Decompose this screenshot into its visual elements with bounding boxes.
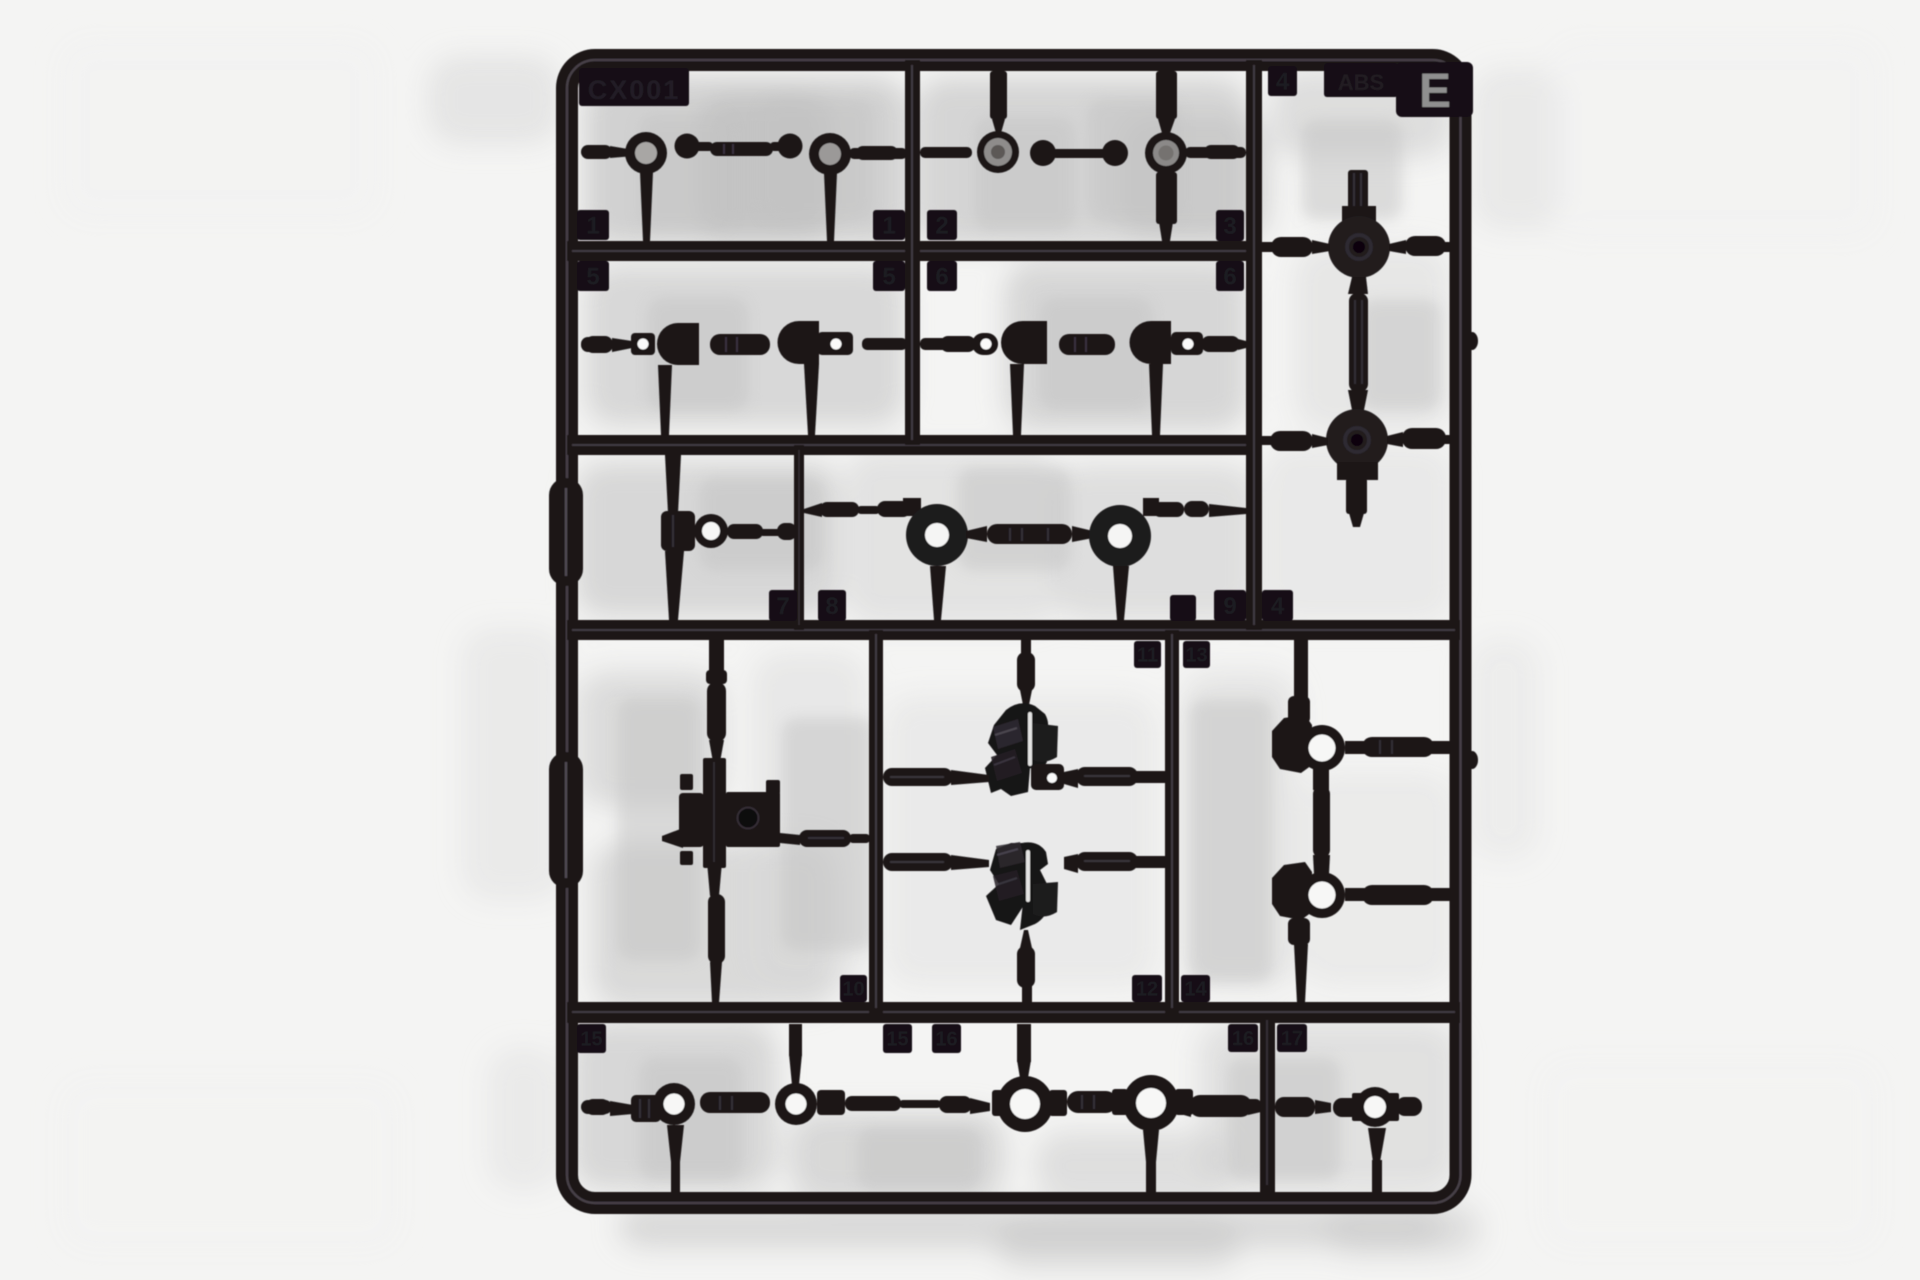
svg-text:12: 12 — [1136, 979, 1158, 1001]
svg-text:16: 16 — [1232, 1028, 1254, 1050]
svg-text:4: 4 — [1271, 593, 1285, 620]
svg-text:7: 7 — [776, 593, 789, 620]
svg-text:15: 15 — [580, 1029, 602, 1051]
svg-text:10: 10 — [842, 979, 864, 1001]
svg-text:16: 16 — [935, 1029, 957, 1051]
svg-text:14: 14 — [1184, 979, 1207, 1001]
svg-text:15: 15 — [886, 1029, 908, 1051]
svg-text:2: 2 — [935, 213, 948, 240]
svg-text:13: 13 — [1185, 645, 1207, 667]
svg-text:ABS: ABS — [1338, 70, 1384, 95]
svg-text:E: E — [1419, 65, 1451, 118]
svg-text:8: 8 — [825, 593, 838, 620]
svg-text:9: 9 — [1223, 593, 1236, 620]
svg-text:11: 11 — [1137, 645, 1158, 667]
svg-text:5: 5 — [586, 264, 599, 291]
svg-text:CX001: CX001 — [588, 75, 681, 105]
svg-text:5: 5 — [882, 264, 895, 291]
svg-text:1: 1 — [882, 213, 895, 240]
svg-text:6: 6 — [1223, 264, 1236, 291]
svg-text:17: 17 — [1281, 1028, 1303, 1050]
svg-text:3: 3 — [1223, 213, 1236, 240]
svg-text:1: 1 — [586, 213, 599, 240]
svg-text:6: 6 — [935, 264, 948, 291]
svg-text:4: 4 — [1276, 69, 1290, 96]
